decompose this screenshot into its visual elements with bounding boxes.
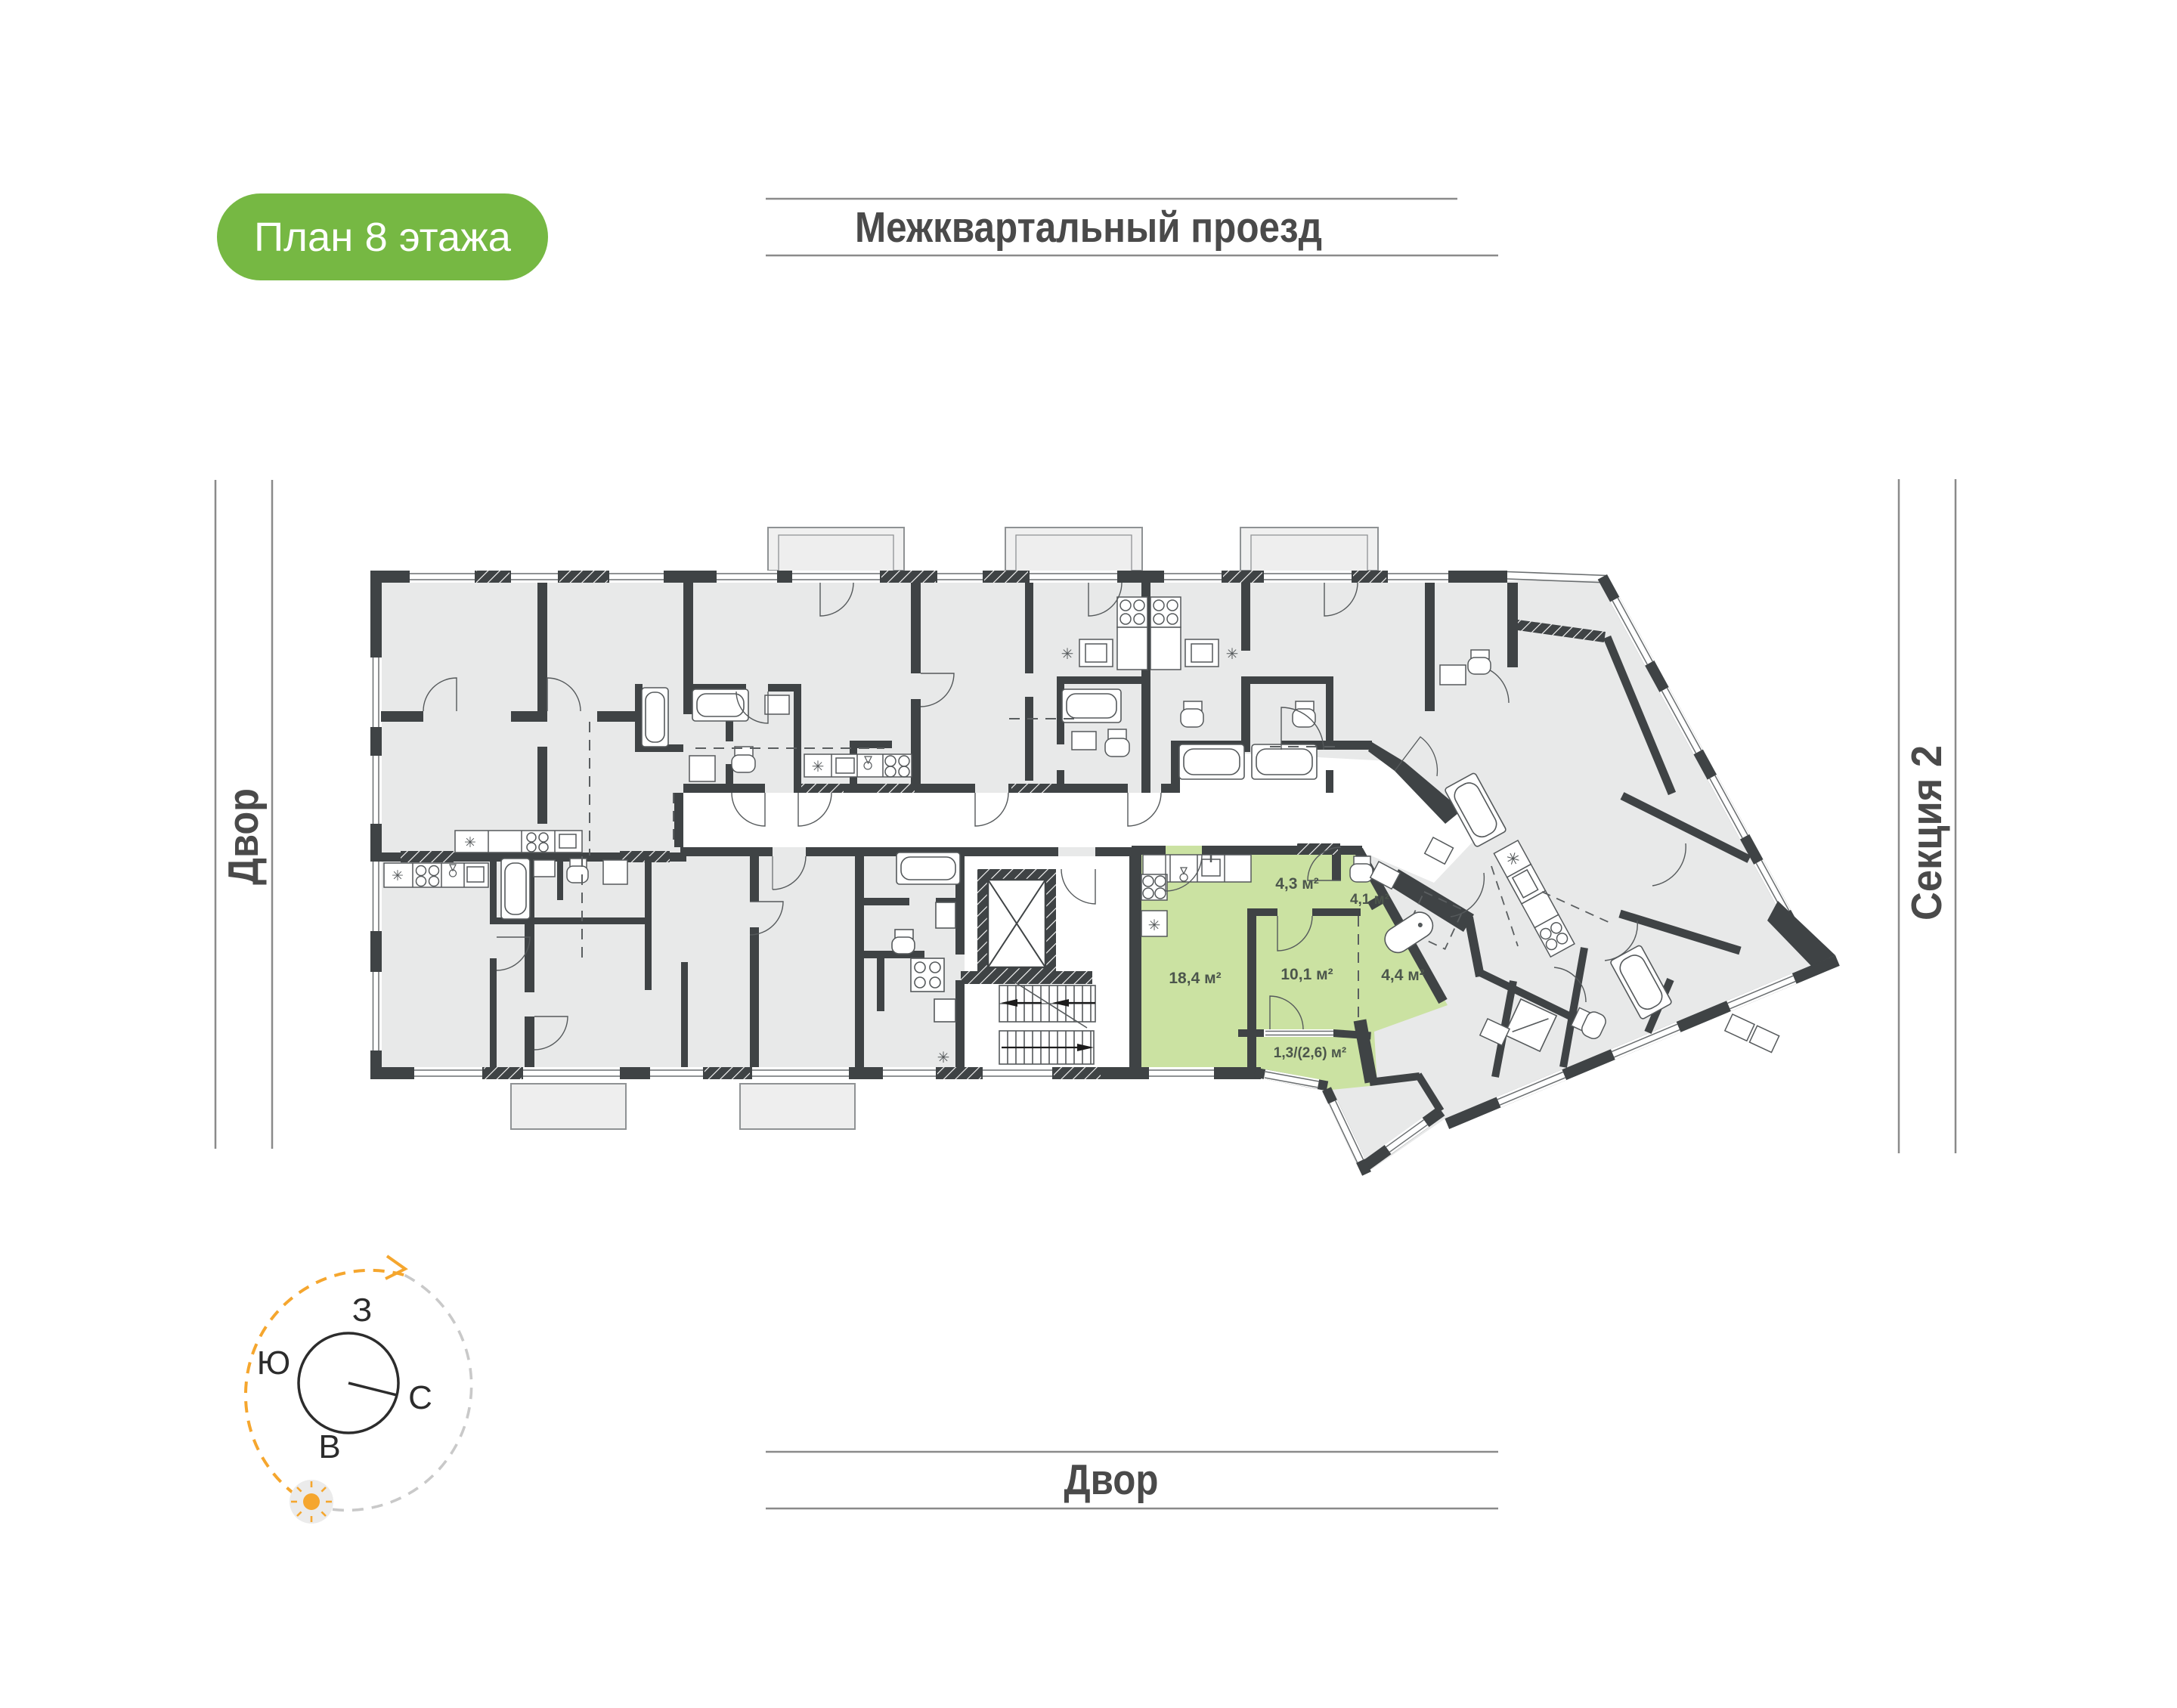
svg-text:✳: ✳ — [812, 759, 825, 775]
svg-text:Межквартальный проезд: Межквартальный проезд — [855, 203, 1322, 252]
svg-text:✳: ✳ — [464, 835, 476, 851]
svg-text:✳: ✳ — [1148, 917, 1161, 934]
svg-text:В: В — [318, 1428, 340, 1465]
svg-text:Двор: Двор — [1064, 1456, 1159, 1504]
svg-text:✳: ✳ — [937, 1050, 950, 1066]
svg-text:План 8 этажа: План 8 этажа — [254, 215, 512, 260]
svg-text:4,1 м²: 4,1 м² — [1350, 892, 1389, 908]
svg-text:З: З — [352, 1292, 373, 1329]
svg-text:✳: ✳ — [1061, 646, 1074, 663]
svg-text:4,3 м²: 4,3 м² — [1275, 875, 1319, 893]
svg-text:✳: ✳ — [392, 868, 404, 884]
svg-text:18,4 м²: 18,4 м² — [1169, 970, 1221, 987]
svg-text:Двор: Двор — [219, 788, 268, 885]
svg-text:1,3/(2,6) м²: 1,3/(2,6) м² — [1274, 1045, 1346, 1061]
svg-text:10,1 м²: 10,1 м² — [1280, 966, 1333, 983]
svg-text:Ю: Ю — [257, 1344, 290, 1382]
svg-text:✳: ✳ — [1226, 646, 1239, 663]
svg-text:4,4 м²: 4,4 м² — [1381, 967, 1425, 984]
svg-text:Секция 2: Секция 2 — [1903, 745, 1951, 921]
svg-text:С: С — [408, 1379, 432, 1416]
